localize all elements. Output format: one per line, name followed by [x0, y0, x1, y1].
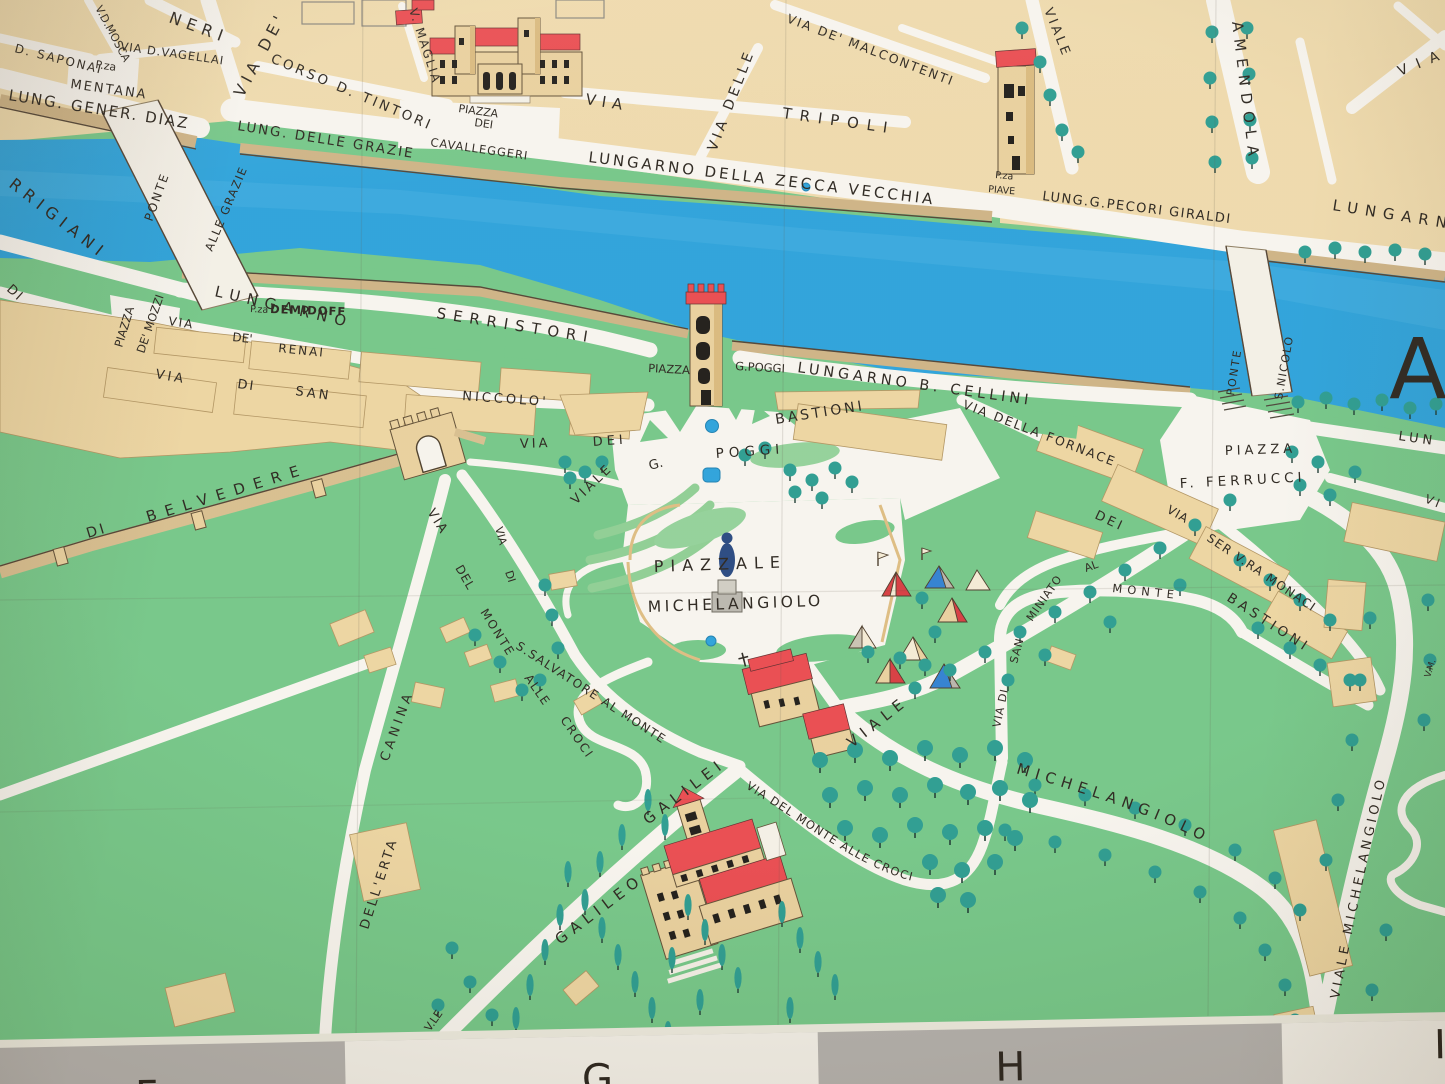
torre-della-zecca-icon — [995, 49, 1036, 174]
label-piazza-cavalleggeri-2: DEI — [474, 116, 494, 131]
river-label-arno-partial: A — [1389, 320, 1445, 418]
street-label-niccolo-2: DI — [236, 377, 256, 394]
torre-san-niccolo-icon — [686, 284, 726, 406]
street-label-via-dei-w1: VIA — [520, 436, 551, 452]
street-label-via-dei-w2: DEI — [592, 433, 627, 450]
label-pza-piave-2: PIAVE — [988, 184, 1016, 197]
street-label-renai-2: DE' — [232, 330, 253, 346]
grid-letter-g: G — [582, 1056, 614, 1084]
label-piazza-poggi-1: PIAZZA — [648, 361, 691, 377]
map-photo: D. SAPONAI V.D.MOSCA NERI VIA D.VAGELLAI… — [0, 0, 1445, 1084]
grid-letter-i-partial: I — [1434, 1022, 1445, 1068]
label-pza-piave-1: P.za — [995, 170, 1014, 183]
label-piazza-ferrucci-1: PIAZZA — [1225, 442, 1297, 459]
label-demidoff-1: P.za — [250, 304, 269, 316]
label-demidoff-2: DEMIDOFF — [270, 302, 347, 319]
florence-pictorial-map: D. SAPONAI V.D.MOSCA NERI VIA D.VAGELLAI… — [0, 0, 1445, 1084]
label-piazza-poggi-2: G.POGGI — [735, 359, 785, 376]
grid-letter-h: H — [995, 1044, 1026, 1084]
grid-letter-f: F — [135, 1073, 159, 1084]
